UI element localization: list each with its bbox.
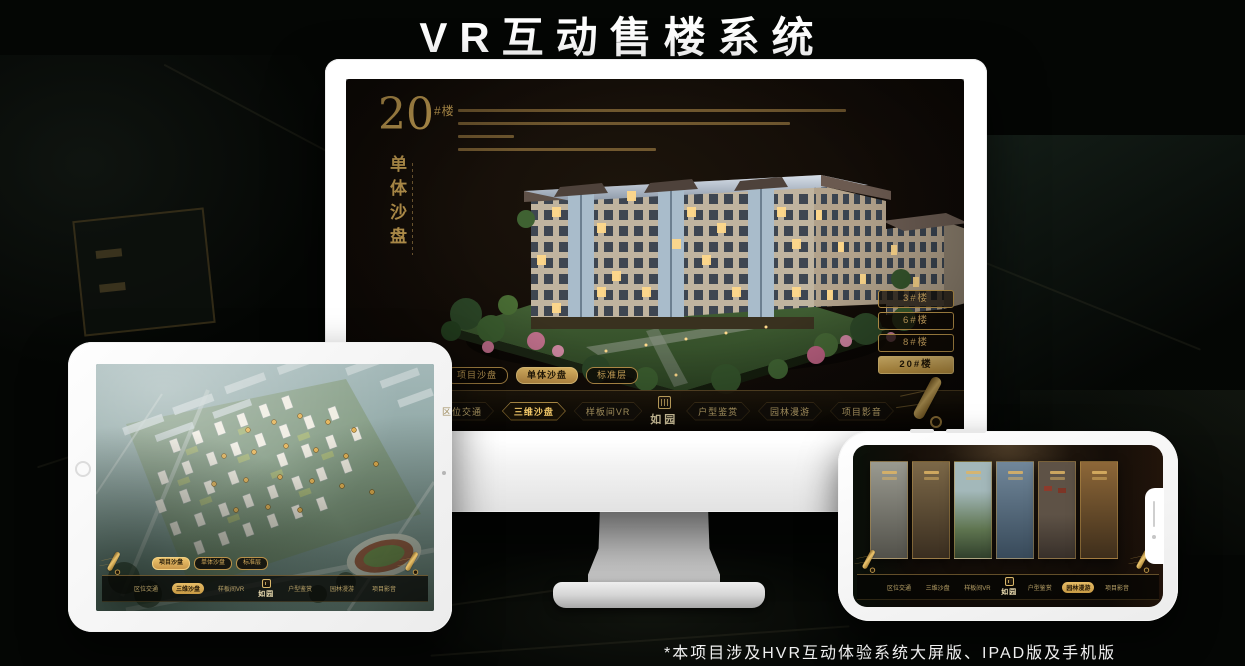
monitor-stand-neck bbox=[588, 510, 720, 587]
subtab-unit-sandbox[interactable]: 单体沙盘 bbox=[516, 367, 578, 384]
unit-heading-subtitle: 单体沙盘 bbox=[384, 155, 409, 251]
unit-heading: 20#楼 bbox=[378, 93, 455, 137]
ipad-screen: 项目沙盘 单体沙盘 标准层 区位交通 三维沙盘 样板间VR 如园 户型鉴赏 园林… bbox=[96, 364, 434, 611]
gallery-panel[interactable] bbox=[912, 461, 950, 559]
ipad-device: 项目沙盘 单体沙盘 标准层 区位交通 三维沙盘 样板间VR 如园 户型鉴赏 园林… bbox=[68, 342, 452, 632]
ipad-subtab-project-sandbox[interactable]: 项目沙盘 bbox=[152, 557, 190, 570]
speaker-slit-icon bbox=[1153, 501, 1155, 527]
poster-canvas: VR互动售楼系统 bbox=[0, 0, 1245, 666]
brand-logo: 如园 bbox=[650, 396, 678, 427]
nav-item-project-media[interactable]: 项目影音 bbox=[830, 402, 894, 421]
scroll-ornament-icon bbox=[104, 551, 124, 575]
nav-item-showroom-vr[interactable]: 样板间VR bbox=[574, 402, 643, 421]
nav-item-3d-sandbox[interactable]: 三维沙盘 bbox=[502, 402, 566, 421]
gallery-panel[interactable] bbox=[1080, 461, 1118, 559]
nav-item-project-media[interactable]: 项目影音 bbox=[368, 583, 400, 594]
building-button[interactable]: 8#楼 bbox=[878, 334, 954, 352]
scroll-ornament-icon bbox=[402, 551, 422, 575]
seal-icon bbox=[658, 396, 671, 409]
subtab-bar: 项目沙盘 单体沙盘 标准层 bbox=[446, 367, 638, 384]
brand-logo: 如园 bbox=[258, 579, 274, 599]
monitor-stand-base bbox=[553, 582, 765, 608]
phone-volume-button bbox=[910, 429, 934, 433]
aerial-masterplan-map[interactable] bbox=[96, 364, 434, 611]
nav-item-floorplans[interactable]: 户型鉴赏 bbox=[686, 402, 750, 421]
scroll-ornament-icon bbox=[859, 549, 879, 573]
nav-item-garden-roam[interactable]: 园林漫游 bbox=[758, 402, 822, 421]
page-title: VR互动售楼系统 bbox=[0, 4, 1245, 65]
phone-volume-button bbox=[946, 429, 986, 433]
ipad-subtab-unit-sandbox[interactable]: 单体沙盘 bbox=[194, 557, 232, 570]
nav-item-floorplans[interactable]: 户型鉴赏 bbox=[1024, 582, 1056, 593]
unit-heading-suffix: #楼 bbox=[434, 104, 455, 118]
phone-main-nav: 区位交通 三维沙盘 样板间VR 如园 户型鉴赏 园林漫游 项目影音 bbox=[857, 574, 1159, 600]
building-select-group: 3#楼 6#楼 8#楼 20#楼 bbox=[878, 290, 954, 374]
nav-item-3d-sandbox[interactable]: 三维沙盘 bbox=[922, 582, 954, 593]
ipad-subtab-bar: 项目沙盘 单体沙盘 标准层 bbox=[152, 557, 268, 570]
ipad-subtab-standard-floor[interactable]: 标准层 bbox=[236, 557, 268, 570]
heading-divider bbox=[412, 163, 413, 255]
seal-icon bbox=[1005, 577, 1014, 586]
nav-item-location[interactable]: 区位交通 bbox=[130, 583, 162, 594]
nav-item-garden-roam[interactable]: 园林漫游 bbox=[1062, 582, 1094, 593]
gallery-panel[interactable] bbox=[1038, 461, 1076, 559]
nav-item-garden-roam[interactable]: 园林漫游 bbox=[326, 583, 358, 594]
footnote: *本项目涉及HVR互动体验系统大屏版、IPAD版及手机版 bbox=[664, 639, 1116, 663]
subtab-standard-floor[interactable]: 标准层 bbox=[586, 367, 638, 384]
seal-icon bbox=[262, 579, 271, 588]
gallery-panels bbox=[870, 461, 1118, 559]
nav-item-location[interactable]: 区位交通 bbox=[883, 582, 915, 593]
gallery-panel[interactable] bbox=[954, 461, 992, 559]
bg-plaque bbox=[72, 207, 215, 336]
building-button[interactable]: 6#楼 bbox=[878, 312, 954, 330]
phone-device: 区位交通 三维沙盘 样板间VR 如园 户型鉴赏 园林漫游 项目影音 bbox=[838, 431, 1178, 621]
gallery-panel[interactable] bbox=[870, 461, 908, 559]
gallery-panel[interactable] bbox=[996, 461, 1034, 559]
nav-item-showroom-vr[interactable]: 样板间VR bbox=[960, 582, 994, 593]
phone-notch bbox=[1145, 488, 1164, 564]
phone-screen: 区位交通 三维沙盘 样板间VR 如园 户型鉴赏 园林漫游 项目影音 bbox=[853, 445, 1163, 607]
scroll-ornament-icon bbox=[906, 375, 950, 429]
building-button[interactable]: 3#楼 bbox=[878, 290, 954, 308]
brand-logo: 如园 bbox=[1001, 577, 1017, 597]
ipad-main-nav: 区位交通 三维沙盘 样板间VR 如园 户型鉴赏 园林漫游 项目影音 bbox=[102, 575, 428, 602]
nav-item-3d-sandbox[interactable]: 三维沙盘 bbox=[172, 583, 204, 594]
description-lines bbox=[458, 109, 846, 161]
nav-item-project-media[interactable]: 项目影音 bbox=[1101, 582, 1133, 593]
nav-item-floorplans[interactable]: 户型鉴赏 bbox=[284, 583, 316, 594]
ipad-sensor-dot bbox=[442, 471, 446, 475]
building-button-active[interactable]: 20#楼 bbox=[878, 356, 954, 374]
camera-dot-icon bbox=[1152, 535, 1156, 539]
ipad-camera-icon bbox=[75, 461, 91, 477]
nav-item-showroom-vr[interactable]: 样板间VR bbox=[214, 583, 248, 594]
subtab-project-sandbox[interactable]: 项目沙盘 bbox=[446, 367, 508, 384]
